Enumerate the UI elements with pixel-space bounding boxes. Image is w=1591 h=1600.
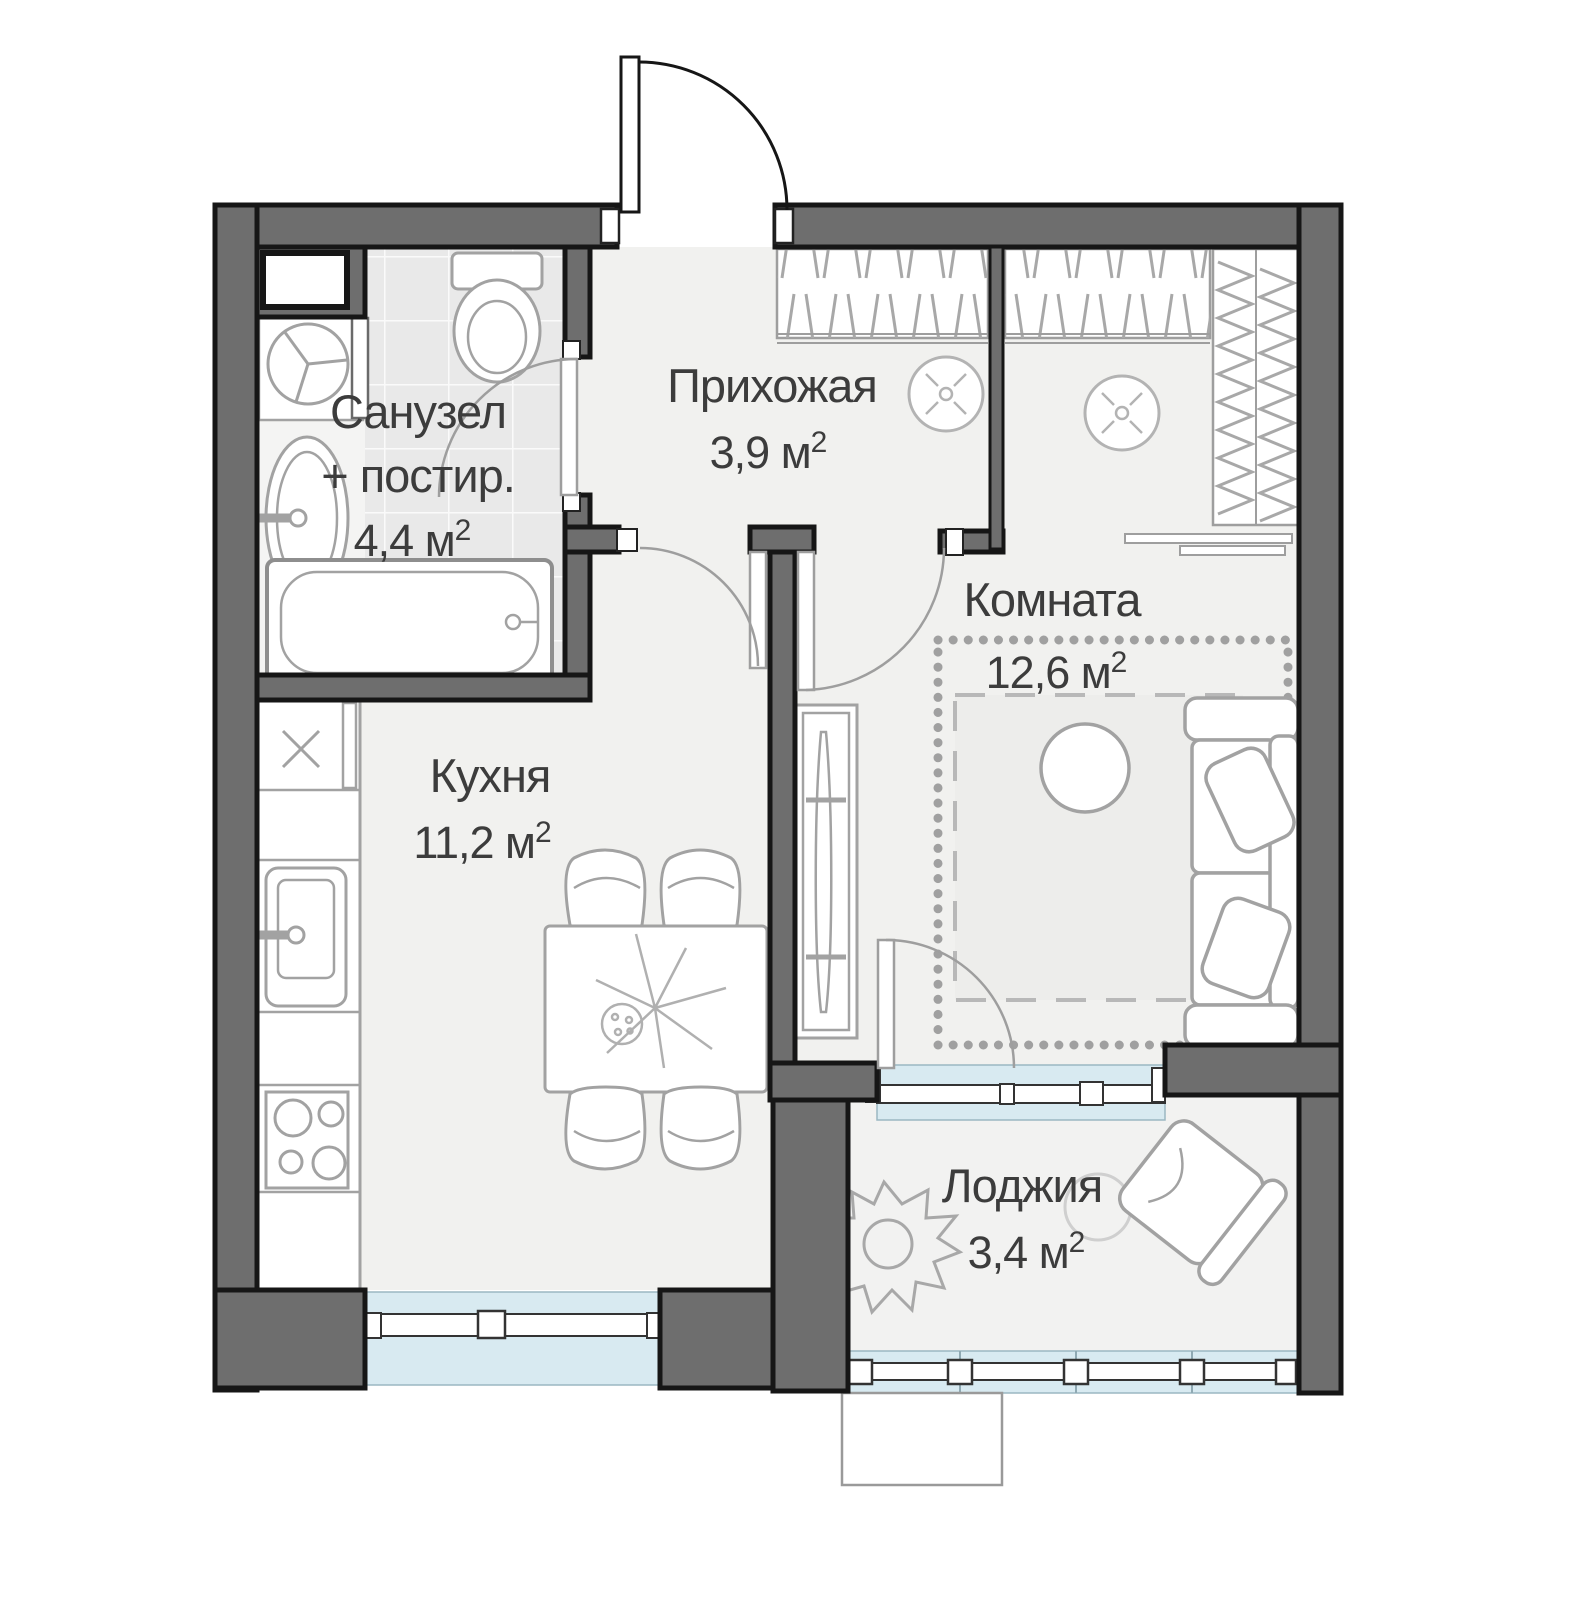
round-table <box>1041 724 1129 812</box>
stove-burner <box>280 1151 302 1173</box>
wall-room-bottom-right <box>1165 1045 1341 1095</box>
bathroom-label-2: + постир. <box>321 449 515 502</box>
balcony-door-leaf <box>878 940 894 1068</box>
wall-left <box>215 205 257 1390</box>
stove-burner <box>313 1147 345 1179</box>
wall-niche <box>263 253 347 307</box>
loggia-window <box>866 1065 1165 1120</box>
hallway-label: Прихожая <box>667 359 877 412</box>
door-jamb <box>775 209 793 243</box>
sofa-armrest <box>1185 698 1298 740</box>
glazing-mullion <box>1064 1360 1088 1384</box>
dining-chair <box>566 850 645 932</box>
entry-door-leaf <box>621 57 639 212</box>
door-jamb <box>601 209 619 243</box>
kitchen-label: Кухня <box>430 749 551 802</box>
sofa <box>1185 698 1299 1047</box>
dining-chair <box>661 1087 740 1169</box>
counter-slim-cabinet <box>343 703 356 788</box>
wall-stub-center-doors <box>750 527 814 552</box>
glazing-mullion <box>1276 1360 1296 1384</box>
glazing-mullion <box>1180 1360 1204 1384</box>
room-door-leaf <box>798 552 814 690</box>
bathroom-door-leaf <box>561 359 577 495</box>
living-room-area: 12,6 м2 <box>986 646 1127 698</box>
wall-top-left <box>215 205 617 247</box>
door-jamb <box>617 529 637 551</box>
glazing-mullion <box>948 1360 972 1384</box>
floor-plan-canvas: Санузел + постир. 4,4 м2 Прихожая 3,9 м2… <box>0 0 1591 1600</box>
bathroom-area: 4,4 м2 <box>354 514 471 566</box>
tall-cabinet <box>795 705 857 1038</box>
entry-door-swing <box>639 62 787 210</box>
kitchen-window <box>364 1292 664 1385</box>
wall-room-bottom-left-stub <box>770 1063 877 1100</box>
wall-bottom-left <box>215 1290 365 1388</box>
loggia-label: Лоджия <box>942 1159 1103 1212</box>
bathroom-label: Санузел <box>330 385 506 438</box>
bathtub-drain <box>506 615 520 629</box>
ceiling-light-icon <box>1085 376 1159 450</box>
loggia-glazing <box>848 1351 1299 1393</box>
kitchen-sink-basin <box>278 880 334 978</box>
toilet-seat <box>468 301 526 373</box>
wall-kitchen-room-partition <box>770 527 795 1100</box>
room-wardrobe-hatch <box>1005 249 1210 338</box>
wall-top-right <box>775 205 1341 247</box>
wall-bottom-mid <box>660 1290 784 1388</box>
wall-loggia-left <box>773 1095 848 1391</box>
ceiling-light-icon <box>909 357 983 431</box>
door-jamb <box>563 341 580 359</box>
wall-right <box>1299 205 1341 1393</box>
wall-shelf <box>1125 534 1292 543</box>
wall-stub-kitchen-door-left <box>565 527 619 552</box>
entry-door <box>601 57 793 243</box>
window-mullion <box>1080 1082 1103 1105</box>
sofa-armrest <box>1185 1005 1298 1047</box>
stove-burner <box>319 1102 343 1126</box>
dining-chair <box>661 850 740 932</box>
wall-bathroom-bottom <box>257 675 590 700</box>
hallway-wardrobe-hatch <box>777 249 988 338</box>
kitchen-fixtures <box>257 700 360 1290</box>
cabinet-door <box>816 732 832 1012</box>
stove-burner <box>275 1100 311 1136</box>
window-frame <box>380 1314 648 1336</box>
wall-shelf <box>1180 546 1285 555</box>
wall-hallway-room-partition <box>990 247 1003 549</box>
hallway-area: 3,9 м2 <box>710 426 827 478</box>
glazing-mullion <box>848 1360 872 1384</box>
loggia-area: 3,4 м2 <box>968 1226 1085 1278</box>
sink-faucet-head <box>290 510 306 526</box>
living-room-label: Комната <box>963 573 1142 626</box>
kitchen-faucet-head <box>288 927 304 943</box>
floor-plan: Санузел + постир. 4,4 м2 Прихожая 3,9 м2… <box>0 0 1591 1600</box>
window-mullion <box>478 1311 505 1338</box>
window-frame <box>877 1085 1165 1103</box>
bathtub-inner <box>281 572 538 673</box>
window-jamb <box>1000 1084 1014 1104</box>
lower-floor-loggia-outline <box>842 1393 1002 1485</box>
kitchen-area: 11,2 м2 <box>413 816 551 868</box>
dining-chair <box>566 1087 645 1169</box>
door-jamb <box>946 529 963 555</box>
